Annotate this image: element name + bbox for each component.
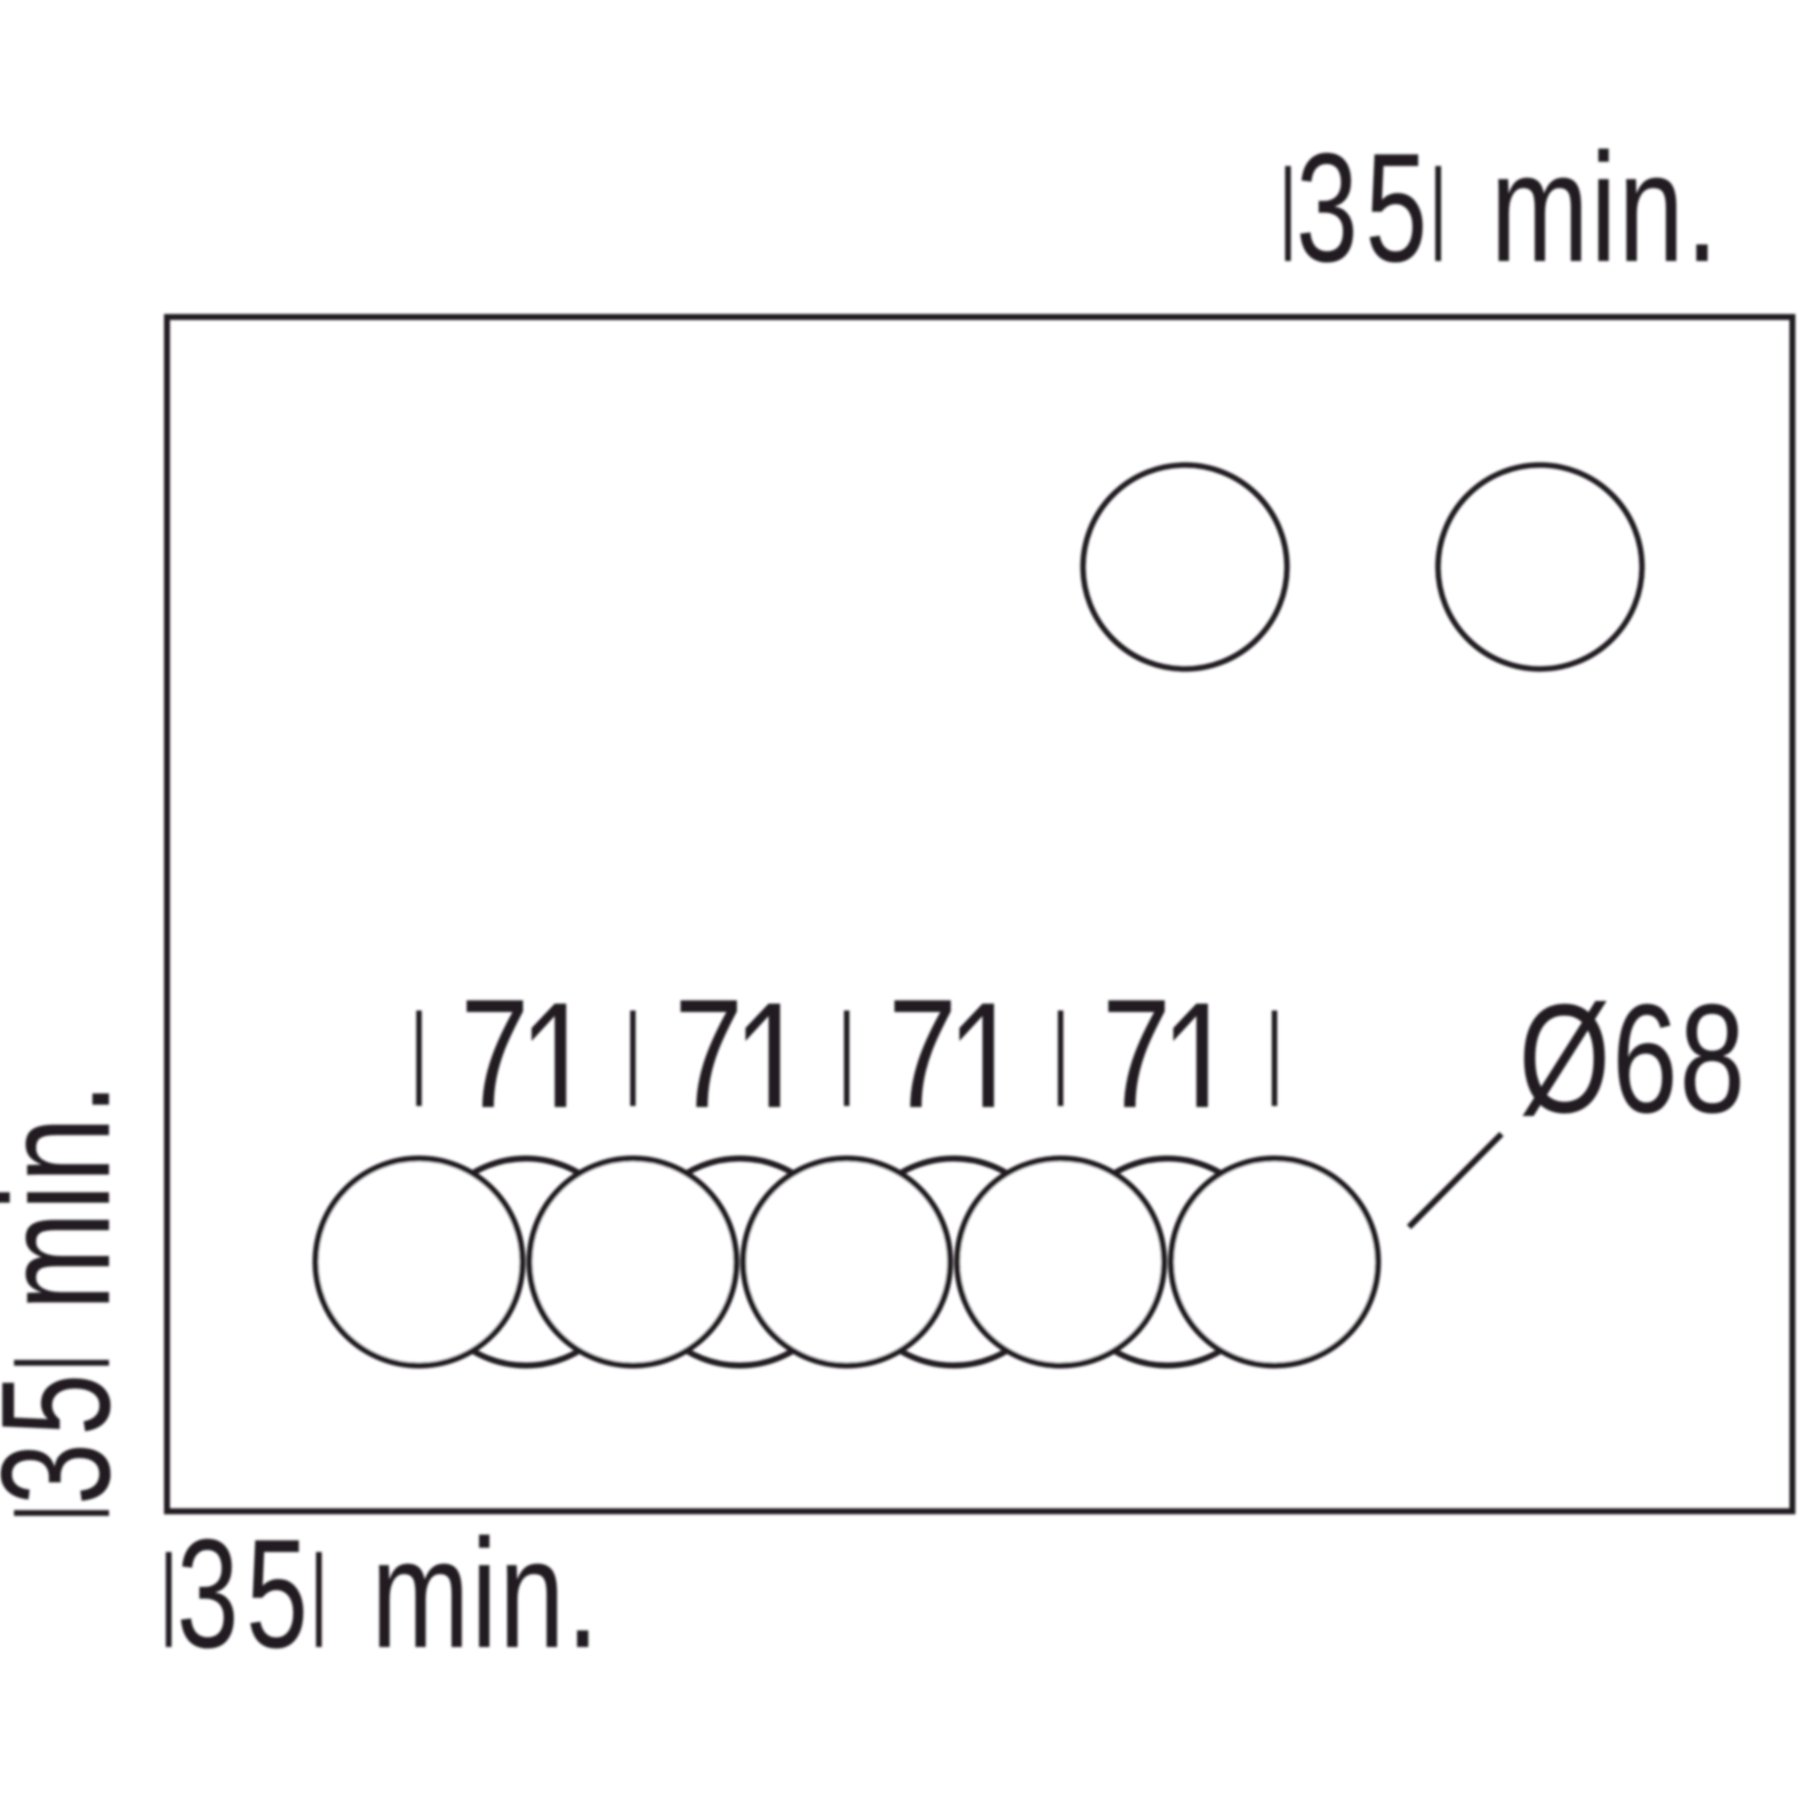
svg-text:35: 35 [1296,121,1435,294]
svg-text:min.: min. [0,1081,143,1311]
svg-text:min.: min. [371,1508,601,1681]
svg-text:35: 35 [177,1507,316,1680]
svg-text:35: 35 [0,1366,142,1505]
svg-text:min.: min. [1490,122,1720,295]
svg-text:Ø68: Ø68 [1519,973,1747,1146]
